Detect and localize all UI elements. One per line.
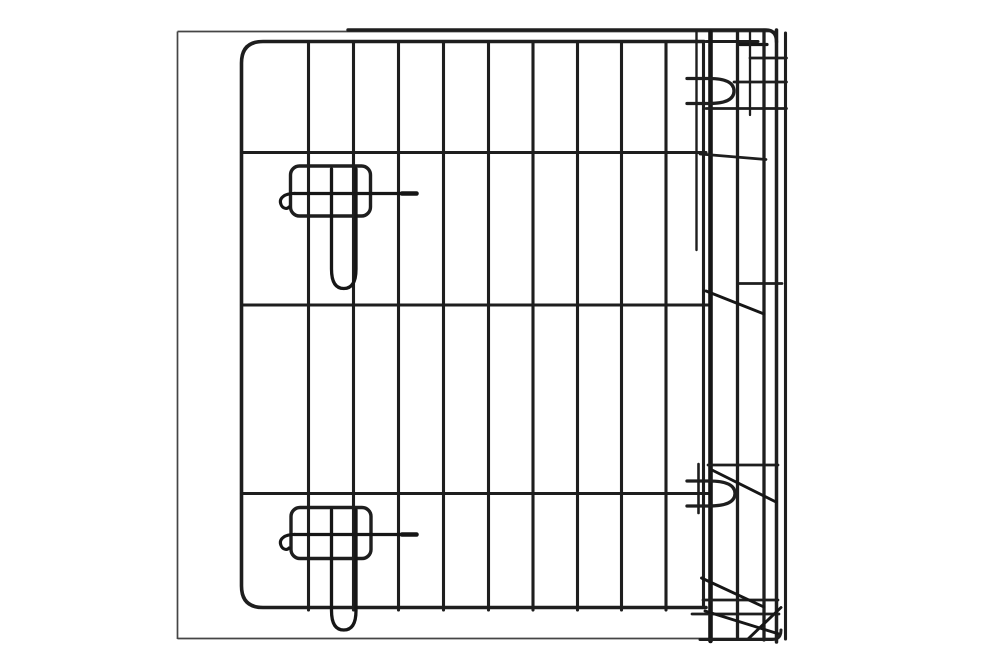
door-frame	[242, 42, 707, 608]
side-panel-connectors	[692, 58, 787, 614]
photo-frame-border	[178, 32, 778, 640]
upper-slide-latch	[280, 166, 416, 289]
crate-door-illustration	[0, 0, 1000, 657]
lower-slide-latch	[280, 508, 416, 631]
latch-rod-hook	[280, 534, 296, 549]
latch-rod-hook	[280, 193, 296, 208]
crate-door-photo	[0, 0, 1000, 657]
door-horizontal-wires	[242, 153, 709, 494]
door-panel	[242, 42, 709, 611]
crate-hinge-side	[348, 30, 787, 642]
door-vertical-wires	[309, 42, 667, 611]
